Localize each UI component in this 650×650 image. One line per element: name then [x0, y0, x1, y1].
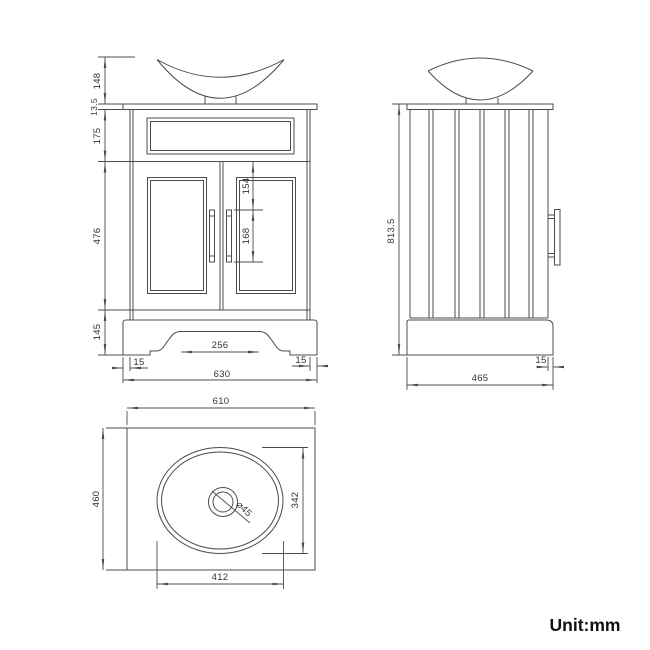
dim-countertop-width: 610 — [213, 396, 230, 407]
dim-door-section-height: 476 — [92, 228, 103, 245]
dim-front-overhang: 15 — [535, 355, 546, 366]
dim-handle-length: 168 — [241, 228, 252, 245]
technical-drawing: 148 13.5 175 476 145 154 168 256 15 15 6… — [0, 0, 650, 650]
drain-inner — [213, 492, 233, 512]
countertop-front — [123, 104, 317, 110]
dim-basin-length: 412 — [212, 572, 229, 583]
left-door-handle — [210, 210, 215, 262]
drawer-front-panel — [147, 118, 294, 154]
dim-side-inset-right: 15 — [295, 355, 306, 366]
dim-plinth-height: 145 — [92, 324, 103, 341]
dim-basin-width: 342 — [290, 492, 301, 509]
dim-overall-depth: 465 — [472, 373, 489, 384]
dim-countertop-thickness: 13.5 — [89, 98, 99, 116]
side-panel-planks — [429, 110, 533, 319]
dim-countertop-depth: 460 — [91, 491, 102, 508]
dim-basin-height: 148 — [92, 73, 103, 90]
dim-drain-diameter: ⌀45 — [234, 499, 254, 519]
side-view — [407, 58, 560, 355]
dim-drawer-section-height: 175 — [92, 128, 103, 145]
right-door-handle — [227, 210, 232, 262]
basin-front-outline — [157, 60, 284, 99]
dim-overall-width: 630 — [214, 369, 231, 380]
basin-side-outline — [428, 58, 533, 100]
basin-plan-inner — [162, 452, 279, 549]
dim-overall-height: 813.5 — [386, 218, 397, 243]
door-center-divider — [130, 162, 310, 311]
basin-plan-outer — [157, 448, 283, 554]
side-view-dimensions: 813.5 15 465 — [386, 104, 562, 390]
plan-view — [127, 428, 315, 570]
left-door-panel — [148, 178, 207, 294]
plan-view-dimensions: 610 460 342 412 ⌀45 — [91, 396, 315, 589]
unit-label: Unit:mm — [550, 615, 621, 635]
dim-plinth-cutout-width: 256 — [212, 340, 229, 351]
cabinet-side-outline — [410, 110, 548, 319]
countertop-side — [407, 104, 553, 110]
side-door-handle — [548, 210, 560, 266]
plinth-side — [407, 320, 553, 355]
dim-side-inset-left: 15 — [133, 357, 144, 368]
front-view — [123, 60, 317, 356]
dim-handle-offset-top: 154 — [241, 178, 252, 195]
